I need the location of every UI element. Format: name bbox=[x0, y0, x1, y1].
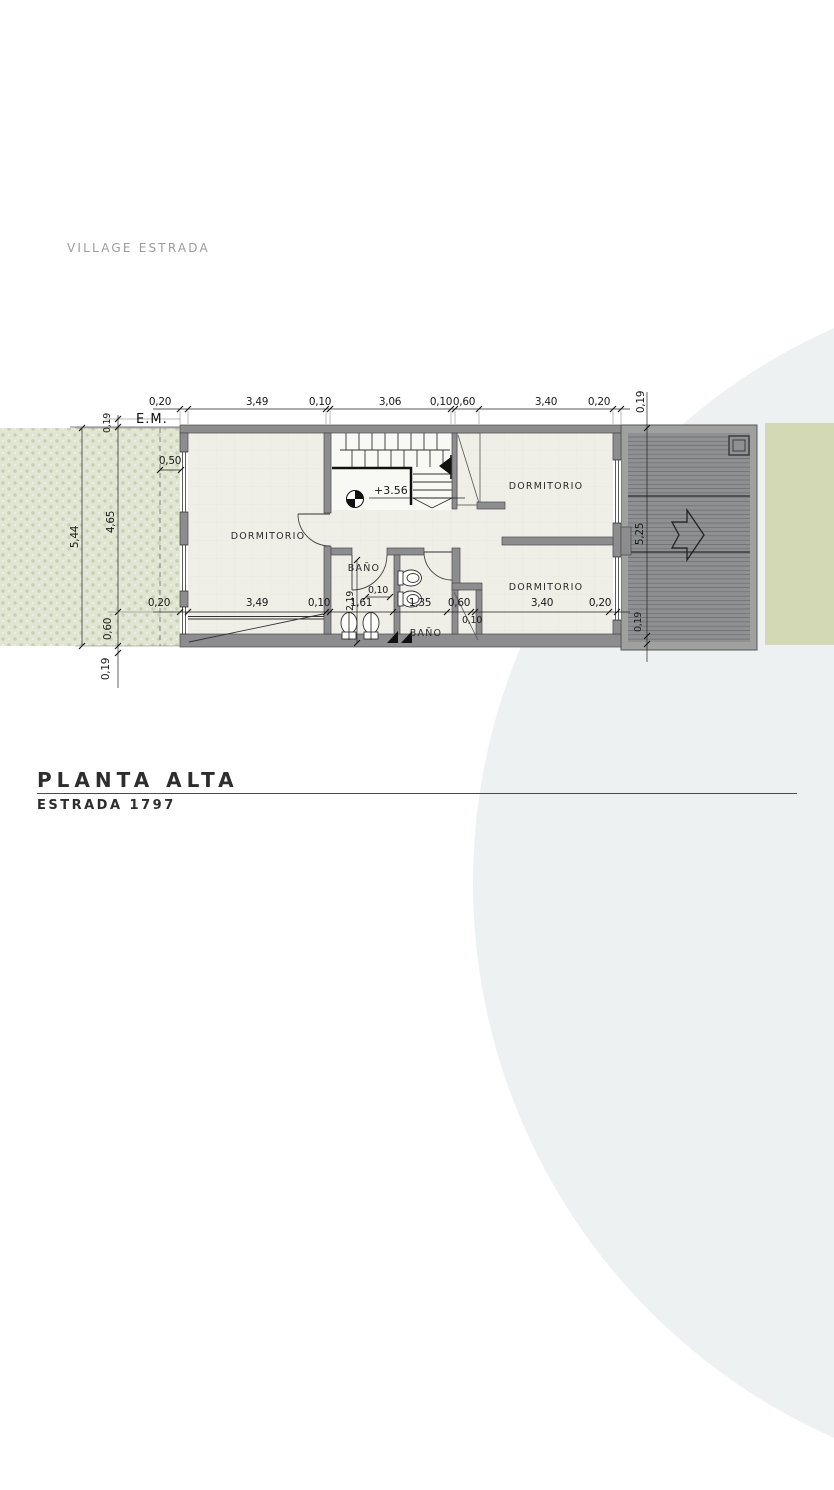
dim-top-1: 0,20 bbox=[149, 396, 171, 408]
dim-bottom-5: 1,35 bbox=[409, 597, 431, 609]
room-label-dormitorio-left: DORMITORIO bbox=[231, 531, 306, 542]
page-title: PLANTA ALTA bbox=[37, 769, 797, 791]
window-left-1 bbox=[180, 452, 188, 512]
level-value: +3.56 bbox=[374, 484, 408, 497]
dim-left-total: 5,44 bbox=[69, 525, 81, 548]
dim-left-interior: 4,65 bbox=[105, 511, 117, 533]
title-block: PLANTA ALTA ESTRADA 1797 bbox=[37, 769, 797, 813]
dim-bottom-2: 3,49 bbox=[246, 597, 268, 609]
dim-bottom-3: 0,10 bbox=[308, 597, 330, 609]
page-subtitle: ESTRADA 1797 bbox=[37, 798, 797, 813]
dim-bottom-1: 0,20 bbox=[148, 597, 170, 609]
dim-top-2: 3,49 bbox=[246, 396, 268, 408]
dim-right-bottom-offset: 0,19 bbox=[633, 612, 644, 632]
dim-bottom-small-a: 0,10 bbox=[368, 585, 388, 596]
dim-left-setback: 0,50 bbox=[159, 455, 181, 467]
dim-bottom-7: 3,40 bbox=[531, 597, 553, 609]
toilet-icon bbox=[341, 612, 357, 640]
dim-top-8: 0,20 bbox=[588, 396, 610, 408]
bidet-icon bbox=[363, 612, 379, 640]
dim-bottom-8: 0,20 bbox=[589, 597, 611, 609]
toilet-icon bbox=[398, 570, 422, 586]
window-right-2 bbox=[613, 557, 621, 620]
em-label: E.M. bbox=[136, 412, 168, 427]
window-left-2 bbox=[180, 545, 188, 591]
dim-top-4: 3,06 bbox=[379, 396, 402, 408]
right-garden-band bbox=[765, 423, 834, 645]
room-label-dormitorio-top-right: DORMITORIO bbox=[509, 481, 584, 492]
dim-top-5: 0,10 bbox=[430, 396, 452, 408]
room-label-banio-lower: BAÑO bbox=[410, 628, 442, 639]
dim-top-7: 3,40 bbox=[535, 396, 557, 408]
dim-left-bottom-a: 0,60 bbox=[102, 618, 114, 640]
room-label-banio-upper: BAÑO bbox=[348, 563, 380, 574]
dim-banio-depth: 2,19 bbox=[345, 591, 356, 611]
title-rule bbox=[37, 793, 797, 794]
dim-row-top: 0,20 3,49 0,10 3,06 0,10 0,60 3,40 0,20 … bbox=[149, 391, 647, 428]
dim-bottom-6: 0,60 bbox=[448, 597, 470, 609]
dim-right-deck-height: 5,25 bbox=[634, 523, 646, 545]
floor-plan-canvas: +3.56 DORMITORIO DORMITORIO DORMITORIO B… bbox=[0, 0, 834, 1080]
dim-top-right-overhang: 0,19 bbox=[635, 391, 647, 413]
dim-top-6: 0,60 bbox=[453, 396, 475, 408]
dim-bottom-small-b: 0,10 bbox=[462, 615, 482, 626]
deck-column bbox=[729, 436, 749, 455]
room-label-dormitorio-bottom-right: DORMITORIO bbox=[509, 582, 584, 593]
window-right-1 bbox=[613, 460, 621, 523]
dim-left-bottom-b: 0,19 bbox=[100, 658, 112, 680]
dim-top-3: 0,10 bbox=[309, 396, 331, 408]
dim-left-top-offset: 0,19 bbox=[102, 413, 113, 433]
